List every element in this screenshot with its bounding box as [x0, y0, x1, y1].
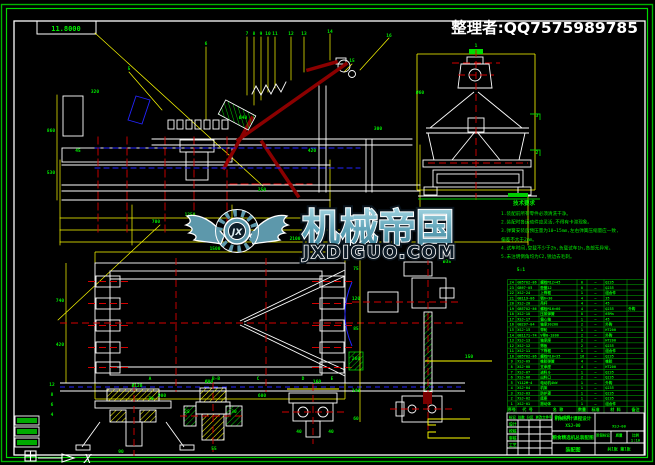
bom-cell: 2 [581, 376, 583, 380]
monogram-text: JX [230, 228, 243, 238]
domain-text: JXDIGUO.COM [302, 243, 457, 263]
bom-cell: 15 [510, 328, 514, 332]
bom-cell: XSJ-06 [517, 376, 530, 380]
dim-label: Ø40 [238, 114, 247, 121]
dim-label: 12 [49, 382, 55, 388]
bom-cell: XSJ-18 [517, 312, 530, 316]
bom-cell: 带轮 [540, 327, 548, 332]
bom-cell: 螺栓M16×60 [540, 306, 560, 311]
bom-cell: 2 [581, 344, 583, 348]
bom-cell: 橡胶 [604, 359, 613, 364]
bom-cell: 8 [581, 312, 583, 316]
bom-cell: 4 [511, 386, 513, 390]
bom-cell: 支承座 [539, 364, 551, 369]
bom-cell: 4 [581, 360, 583, 364]
dim-label: 30 [231, 409, 237, 415]
bom-cell: 65Mn [605, 312, 614, 316]
bom-cell: XSJ-02 [517, 397, 530, 401]
notes-line: 4.试车时间,空载不少于2h,负载试车1h,各部无异常。 [501, 244, 613, 251]
bom-cell: 垫圈12 [540, 285, 552, 290]
bom-cell: — [594, 397, 597, 401]
dim-label: 9 [260, 31, 263, 37]
dim-label: 10 [265, 31, 271, 37]
bom-cell: — [594, 296, 597, 300]
dim-label: 60 [353, 416, 359, 422]
bom-cell: 1 [511, 402, 513, 406]
bom-cell: 外购 [604, 332, 613, 337]
sign-label: 校核 [509, 428, 517, 433]
bom-cell: 2 [581, 333, 583, 337]
bom-cell: GB1171-74 [517, 333, 536, 337]
scale-value: 1:10 [631, 438, 641, 443]
dim-label: 15 [349, 58, 355, 64]
bom-cell: 4 [581, 365, 583, 369]
bom-header: 备注 [631, 406, 640, 412]
sign-label: 审核 [509, 435, 517, 440]
sheet-count: 共1张 第1张 [607, 446, 631, 452]
dim-label: 600 [258, 393, 266, 399]
dim-label: 2 [536, 150, 539, 156]
bom-cell: — [594, 349, 597, 353]
bom-cell: 组合件 [605, 348, 616, 353]
bom-cell: GB119-86 [517, 296, 534, 300]
dim-label: Ø80 [204, 378, 213, 385]
bom-cell: 出料口 [540, 375, 551, 380]
bom-cell: 振动体 [540, 401, 551, 406]
sign-label: 设计 [509, 421, 517, 426]
curator-text: 整理者:QQ7575989785 [450, 18, 638, 37]
bom-cell: 橡胶弹簧 [539, 359, 555, 364]
dim-label: 6 [51, 402, 54, 408]
bom-cell: 1 [581, 402, 583, 406]
bom-cell: — [594, 402, 597, 406]
bom-cell: GB5782-86 [517, 307, 536, 311]
bom-cell: 8 [581, 286, 583, 290]
dim-label: 70 [148, 396, 154, 402]
bom-cell: 机架 [539, 385, 548, 390]
bom-cell: 组合件 [605, 401, 616, 406]
bom-cell: GB297-84 [517, 323, 534, 327]
dim-label: 55 [211, 446, 217, 452]
bom-cell: HT200 [605, 339, 616, 343]
bom-cell: 底座 [539, 396, 548, 401]
bom-cell: 35 [605, 296, 609, 300]
bom-cell: 外购 [627, 306, 636, 311]
bom-cell: — [594, 323, 597, 327]
bom-header: 材 料 [609, 406, 620, 412]
bom-cell: 12 [510, 344, 514, 348]
bom-cell: 14 [510, 333, 514, 337]
drawing-title: 粮食精选机总装配图 [552, 434, 594, 441]
bom-cell: 9 [511, 360, 513, 364]
bom-cell: Q235 [605, 386, 614, 390]
dim-label: 1 [475, 43, 478, 49]
bom-cell: 偏心轴 [540, 316, 551, 321]
dim-label: E [331, 376, 334, 382]
bom-cell: — [594, 312, 597, 316]
bom-cell: XSJ-24 [517, 291, 530, 295]
bom-cell: — [594, 344, 597, 348]
bom-cell: V带B-1800 [540, 332, 559, 337]
dim-label: 740 [56, 298, 64, 304]
bom-cell: — [594, 381, 597, 385]
dim-label: 120 [352, 296, 360, 302]
dim-label: 4 [51, 412, 54, 418]
bom-cell: 进料斗 [540, 369, 551, 374]
bom-cell: 11 [510, 349, 514, 353]
bom-cell: 外购 [604, 322, 613, 327]
bom-cell: 16 [580, 354, 584, 358]
dim-label: 5:1 [517, 267, 525, 273]
bom-cell: 1 [581, 291, 583, 295]
bom-cell: 23 [510, 286, 514, 290]
bom-header: 数量 [577, 406, 586, 412]
bom-cell: — [594, 307, 597, 311]
bom-cell: 2 [511, 397, 513, 401]
dim-label: 3 [536, 113, 539, 119]
bom-cell: 1 [581, 317, 583, 321]
bom-cell: 20 [510, 302, 514, 306]
bom-header: 序号 [507, 406, 516, 412]
bom-cell: XSJ-08 [517, 365, 530, 369]
bom-cell: 电动机4kW [540, 380, 558, 385]
bom-cell: 4 [581, 307, 583, 311]
bom-cell: 16 [510, 323, 514, 327]
bom-cell: — [594, 365, 597, 369]
dim-label: 8 [51, 392, 54, 398]
dim-label: 420 [308, 148, 316, 154]
dim-label: 2100 [290, 236, 301, 242]
bom-header: 名 称 [553, 406, 563, 412]
dim-label: 1500 [210, 246, 221, 252]
bom-cell: 1 [581, 349, 583, 353]
bom-cell: GB5782-86 [517, 354, 536, 358]
dim-label: 700 [152, 219, 160, 225]
bom-cell: XSJ-20 [517, 302, 530, 306]
ucs-icon [25, 451, 74, 462]
bom-cell: 22 [510, 291, 514, 295]
bom-cell: XSJ-12 [517, 344, 530, 348]
bom-cell: 18 [510, 312, 514, 316]
bom-cell: 13 [510, 339, 514, 343]
notes-title: 技术要求 [513, 199, 536, 207]
dim-label: 12 [288, 31, 294, 37]
bom-cell: 2 [581, 323, 583, 327]
notes-line: 5.未注明倒角均为C2,锐边去毛刺。 [501, 253, 575, 260]
bom-cell: Q235 [605, 376, 614, 380]
bom-cell: HT200 [605, 328, 616, 332]
dim-label: 85 [353, 326, 359, 332]
dim-label: Ø120 [131, 382, 143, 389]
dim-label: 25 [184, 409, 190, 415]
bom-cell: Q235 [605, 397, 614, 401]
view-shaft-section [345, 258, 458, 432]
bom-cell: 1 [581, 328, 583, 332]
dim-label: 40 [296, 429, 302, 435]
sheet-label: 装配图 [564, 447, 580, 454]
bom-cell: 2 [581, 339, 583, 343]
dim-label: 75 [353, 266, 359, 272]
bom-cell: XSJ-15 [517, 328, 530, 332]
bom-cell: XSJ-11 [517, 349, 530, 353]
dim-label: D [302, 376, 305, 382]
bom-cell: Q235 [605, 281, 614, 285]
bom-cell: 螺栓M12×45 [540, 280, 560, 285]
view-side-elevation [57, 33, 528, 320]
bom-cell: Q235 [605, 286, 614, 290]
org-code: XSJ-00 [565, 423, 581, 428]
bom-cell: Q235 [605, 391, 614, 395]
bom-cell: 6 [511, 376, 513, 380]
dim-label: 7 [246, 31, 249, 37]
dim-label: 14 [327, 29, 333, 35]
bom-cell: 1 [581, 391, 583, 395]
cad-model-space: 11.8000 [0, 0, 655, 465]
drawing-no: XSJ-00 [612, 424, 626, 429]
bom-cell: 8 [581, 281, 583, 285]
bom-cell: 销6×30 [540, 295, 552, 300]
bom-cell: 4 [581, 296, 583, 300]
dim-label: 11 [272, 31, 278, 37]
bom-cell: 5 [511, 381, 513, 385]
corner-label: 11.8000 [51, 25, 81, 33]
bom-cell: XSJ-07 [517, 370, 530, 374]
notes-line: 偏差不大于2mm。 [501, 236, 537, 243]
bom-table: 24GB5782-86螺栓M12×458—Q23523GB97-85垫圈128—… [507, 280, 644, 414]
bom-cell: 45 [605, 317, 609, 321]
bom-cell: Q235 [605, 307, 614, 311]
bom-cell: 45 [605, 302, 609, 306]
bom-cell: — [594, 302, 597, 306]
dim-label: 530 [47, 170, 55, 176]
bom-cell: 4 [581, 302, 583, 306]
dim-label: 320 [91, 89, 99, 95]
bom-cell: XSJ-03 [517, 391, 530, 395]
watermark-logo: JX 机械帝国 机械帝国 JXDIGUO.COM JXDIGUO.COM [186, 206, 457, 263]
bom-cell: 19 [510, 307, 514, 311]
dim-label: C [257, 376, 260, 382]
bom-cell: 外购 [604, 380, 613, 385]
dim-label: 250 [258, 187, 266, 193]
sign-label: 工艺 [509, 442, 517, 447]
bom-cell: — [594, 328, 597, 332]
org-name: 机械设计课程设计 [555, 415, 592, 422]
bom-cell: GB97-85 [517, 286, 532, 290]
dim-label: B-B [212, 376, 220, 382]
notes-line: 2.装配时各运动件应灵活,不得有卡滞现象。 [501, 219, 592, 226]
bom-cell: — [594, 376, 597, 380]
dim-label: 140 [352, 388, 360, 394]
drawing-canvas: 11.8000 [0, 0, 655, 465]
notes-block: 技术要求1.装配前所有零件必须清洗干净。2.装配时各运动件应灵活,不得有卡滞现象… [501, 199, 619, 260]
bom-header: 代 号 [521, 406, 532, 412]
bom-cell: XSJ-04 [517, 386, 530, 390]
bom-cell: Y112M-4 [517, 381, 532, 385]
dim-label: Ø60 [415, 89, 424, 96]
dim-label: 5 [128, 66, 131, 72]
dim-label: A [149, 376, 152, 382]
dim-label: 13 [301, 31, 307, 37]
notes-line: 3.弹簧安装后预压量为10~15mm,左右弹簧压缩量应一致, [501, 227, 619, 234]
bom-cell: 螺栓M10×35 [540, 353, 560, 358]
bom-cell: 3 [511, 391, 513, 395]
bom-cell: 筛板 [540, 343, 548, 348]
bom-cell: 1 [581, 370, 583, 374]
bom-cell: XSJ-09 [517, 360, 530, 364]
bom-cell: 防护罩 [540, 390, 551, 395]
bom-cell: 1 [581, 381, 583, 385]
dim-label: 860 [47, 128, 55, 134]
bom-cell: 轴承30208 [540, 322, 558, 327]
bom-cell: — [594, 354, 597, 358]
bom-cell: 7 [511, 370, 513, 374]
bom-cell: XSJ-17 [517, 317, 530, 321]
dim-label: 420 [56, 342, 64, 348]
bom-cell: — [594, 291, 597, 295]
bom-cell: 组合件 [605, 290, 616, 295]
bom-cell: Q235 [605, 370, 614, 374]
bom-cell: 1 [581, 397, 583, 401]
bom-cell: XSJ-01 [517, 402, 530, 406]
bom-cell: — [594, 360, 597, 364]
bom-cell: 8 [511, 365, 513, 369]
dim-label: 16 [386, 33, 392, 39]
bom-cell: Q235 [605, 354, 614, 358]
bom-cell: — [594, 391, 597, 395]
bom-header: 标准 [591, 406, 600, 412]
view-front-elevation [417, 49, 540, 200]
dim-label: 150 [465, 354, 473, 360]
bom-cell: 吊杆 [540, 301, 548, 306]
stage-label: 阶段标记 [596, 433, 610, 438]
dim-label: 260 [352, 356, 360, 362]
bom-cell: Q235 [605, 344, 614, 348]
bom-cell: — [594, 386, 597, 390]
dim-label: 90 [118, 449, 124, 455]
bom-cell: 10 [510, 354, 514, 358]
bom-cell: 17 [510, 317, 514, 321]
bom-cell: — [594, 286, 597, 290]
bom-cell: 24 [510, 281, 514, 285]
bom-cell: GB5782-86 [517, 281, 536, 285]
bom-cell: 21 [510, 296, 514, 300]
dim-label: 8 [253, 31, 256, 37]
dim-label: 45 [75, 148, 81, 154]
bom-cell: — [594, 317, 597, 321]
bom-cell: — [594, 333, 597, 337]
bom-cell: HT200 [605, 365, 616, 369]
notes-line: 1.装配前所有零件必须清洗干净。 [501, 210, 571, 217]
bom-cell: 下筛框 [540, 348, 551, 353]
bom-cell: 轴承座 [540, 338, 551, 343]
bom-cell: 上筛框 [540, 290, 551, 295]
bom-cell: — [594, 339, 597, 343]
dim-label: 900 [158, 393, 166, 399]
bom-cell: 压紧弹簧 [540, 311, 555, 316]
bom-cell: XSJ-13 [517, 339, 530, 343]
ucs-x-axis-label: X [83, 452, 92, 465]
bom-cell: 1 [581, 386, 583, 390]
bom-cell: — [594, 370, 597, 374]
stage-label: 质量 [615, 433, 623, 438]
dim-label: 160 [313, 379, 321, 385]
dim-label: 40 [328, 429, 334, 435]
bom-cell: — [594, 281, 597, 285]
dim-label: 300 [374, 126, 382, 132]
dim-label: 6 [205, 41, 208, 47]
